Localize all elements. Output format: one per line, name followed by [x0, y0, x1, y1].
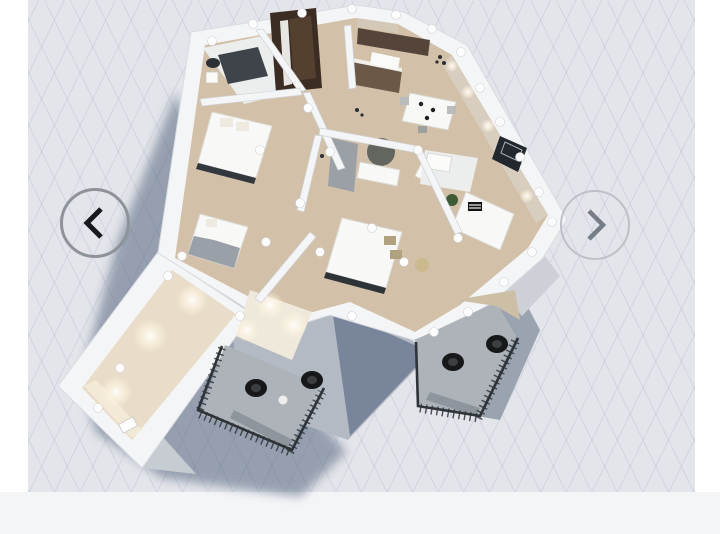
- side-table: [279, 396, 288, 405]
- striped-cushion: [468, 202, 482, 211]
- dining-chair: [447, 106, 456, 114]
- toilet: [206, 58, 220, 68]
- chevron-right-icon: [577, 205, 613, 245]
- chevron-left-icon: [77, 203, 113, 243]
- dining-chair: [400, 97, 409, 105]
- washer: [206, 72, 218, 83]
- floorplan-viewer: [0, 0, 720, 534]
- dining-chair: [418, 126, 427, 133]
- next-arrow-button[interactable]: [560, 190, 630, 260]
- prev-arrow-button[interactable]: [60, 188, 130, 258]
- floorplan-render: [0, 0, 720, 534]
- stool: [415, 258, 429, 272]
